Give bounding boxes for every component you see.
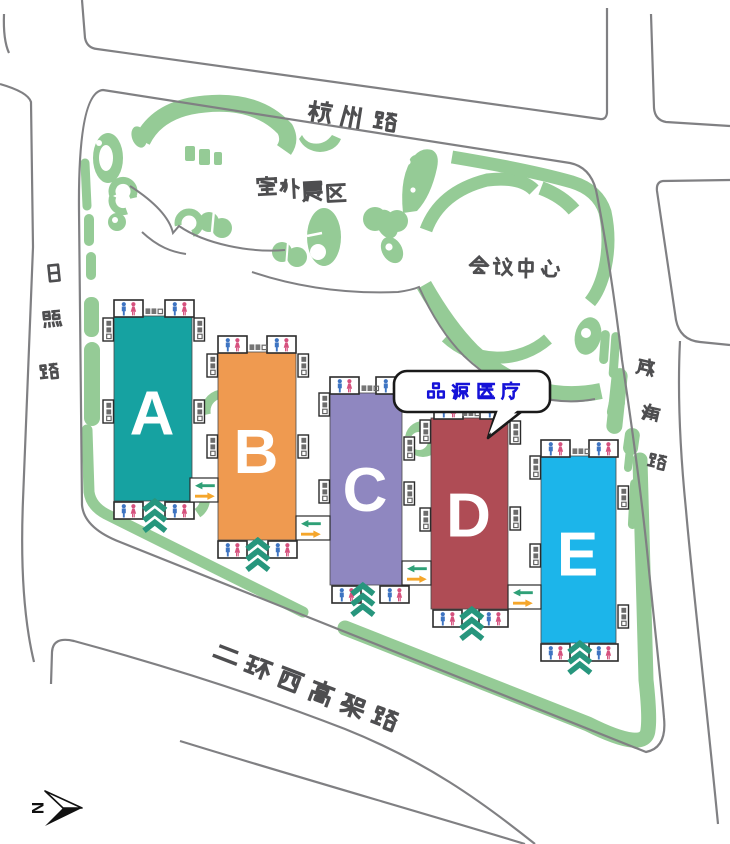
svg-text:N: N: [28, 802, 47, 814]
svg-text:C: C: [343, 456, 388, 525]
svg-text:E: E: [557, 521, 598, 590]
svg-text:D: D: [446, 482, 491, 551]
svg-text:A: A: [130, 380, 175, 449]
svg-text:B: B: [234, 418, 279, 487]
